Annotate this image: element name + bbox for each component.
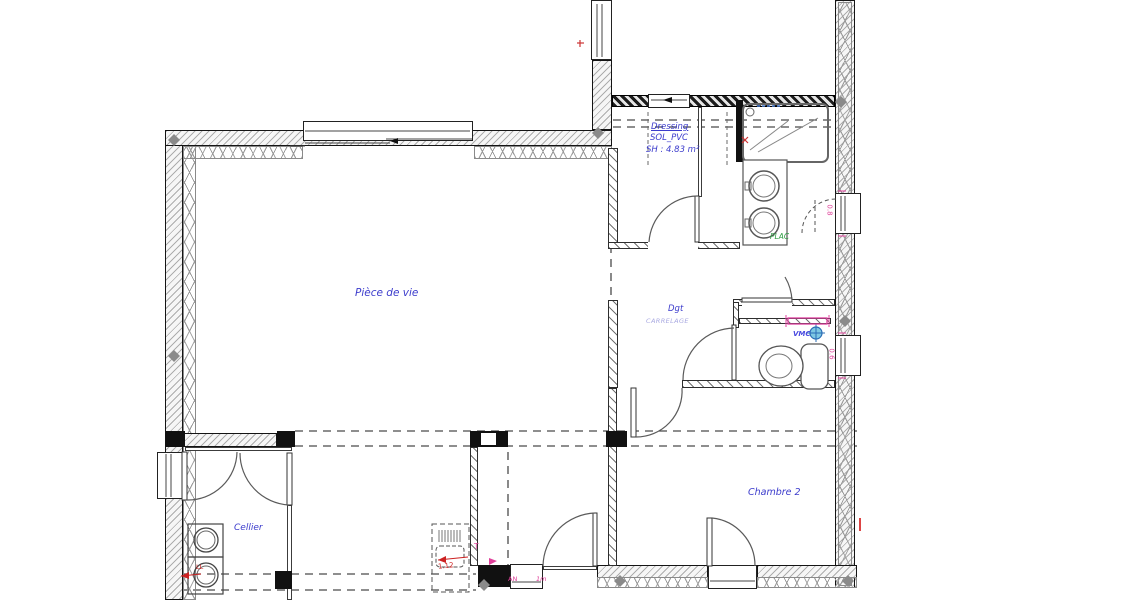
pink-arrowhead	[489, 558, 497, 565]
door-leaf-cellier-left	[182, 452, 187, 500]
door-leaf-chambre2	[631, 388, 636, 437]
door-leaf-dressing	[695, 196, 699, 242]
dim-window-top: 0.8	[826, 204, 834, 215]
door-arc-entry	[543, 513, 595, 566]
room-label-dgt: Dgt	[668, 304, 683, 314]
door-leaf-bath	[742, 298, 792, 302]
shower-tray	[743, 104, 828, 162]
door-leaf-wc	[732, 325, 736, 380]
door-leaf-entry	[593, 513, 597, 566]
entry-mark-2: 1m	[536, 575, 546, 583]
washing-machine-drum	[194, 528, 218, 552]
shower-valve	[746, 108, 754, 116]
door-arc-french-window	[712, 518, 755, 566]
door-arc-dressing	[649, 196, 697, 242]
kitchen-unit-dashed	[432, 524, 469, 592]
floor-plan: Pièce de vie Dressing SOL_PVC SH : 4.83 …	[0, 0, 1140, 600]
washing-machine-drum	[197, 531, 215, 549]
dgt-floor-label: CARRELAGE	[646, 317, 689, 325]
toilet-tank	[801, 344, 828, 389]
room-label-dressing: Dressing	[651, 122, 688, 132]
slide-direction-arrow	[663, 97, 672, 103]
kitchen-drainer	[439, 530, 460, 542]
washer-label: LL	[196, 563, 203, 571]
room-label-piece-de-vie: Pièce de vie	[355, 287, 418, 299]
radiator	[788, 318, 827, 324]
door-arc-bath	[785, 277, 792, 301]
entry-mark-1: AN	[508, 575, 517, 583]
dressing-floor-label: SOL_PVC	[650, 133, 688, 143]
placard-label: PLAC	[770, 232, 789, 241]
door-arc-chambre2	[636, 388, 682, 437]
room-label-cellier: Cellier	[234, 523, 263, 533]
shower-drain-line	[758, 118, 818, 152]
washer-arrowhead	[181, 572, 189, 579]
dressing-area-label: SH : 4.83 m²	[646, 145, 699, 155]
symbols-layer	[0, 0, 1140, 600]
mark-t: T	[474, 542, 479, 551]
door-arc-cellier-right	[240, 453, 289, 505]
door-arc-cellier-left	[187, 452, 237, 500]
door-leaf-french-window	[707, 518, 712, 566]
dim-kitchen: 1.12	[438, 561, 454, 571]
door-arc-wc	[683, 328, 734, 380]
room-label-chambre2: Chambre 2	[748, 487, 801, 498]
vmc-label: VMC	[793, 330, 811, 338]
door-leaf-cellier-right	[287, 453, 292, 505]
dim-window-bottom: 0.6	[828, 348, 836, 359]
